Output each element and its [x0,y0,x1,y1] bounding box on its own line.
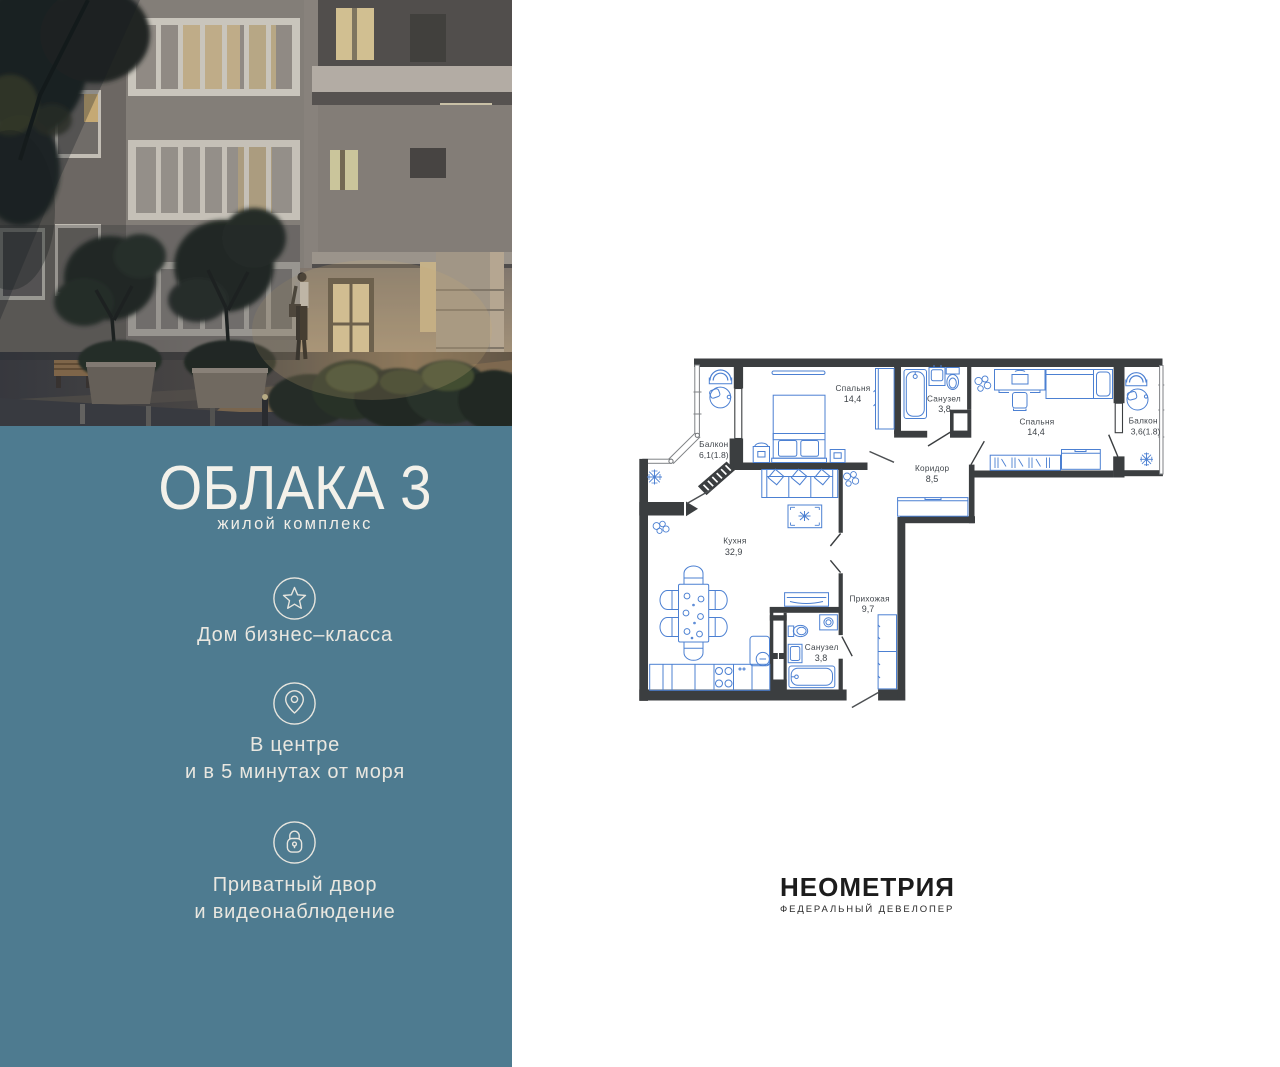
svg-text:3,8: 3,8 [938,404,951,414]
svg-text:3,6(1.8): 3,6(1.8) [1131,427,1161,437]
svg-text:9,7: 9,7 [862,604,875,614]
svg-text:8,5: 8,5 [926,474,939,484]
svg-text:Прихожая: Прихожая [850,594,890,603]
svg-text:14,4: 14,4 [844,394,862,404]
svg-text:6,1(1.8): 6,1(1.8) [699,450,729,460]
svg-text:3,8: 3,8 [815,653,828,663]
svg-text:Спальня: Спальня [836,384,871,393]
svg-text:Кухня: Кухня [723,536,746,545]
svg-text:32,9: 32,9 [725,547,743,557]
svg-text:Санузел: Санузел [927,395,961,404]
svg-text:Санузел: Санузел [805,643,839,652]
svg-text:Балкон: Балкон [1129,416,1158,425]
svg-text:14,4: 14,4 [1027,427,1045,437]
svg-text:Спальня: Спальня [1020,417,1055,426]
svg-text:Балкон: Балкон [699,440,728,449]
svg-text:Коридор: Коридор [915,464,950,473]
